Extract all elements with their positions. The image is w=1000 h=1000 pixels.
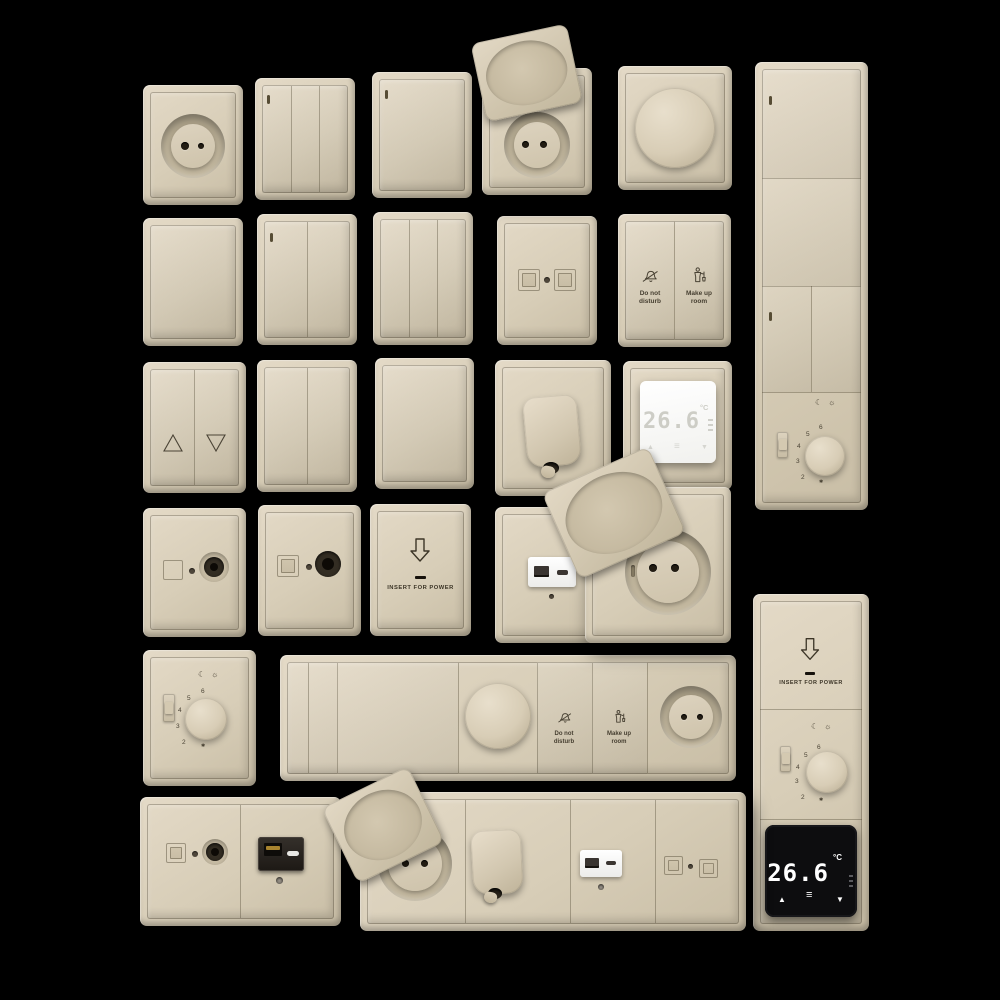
data-jack	[518, 269, 540, 291]
module-divider	[760, 709, 862, 710]
screw	[276, 877, 283, 884]
jack-recess	[163, 560, 183, 580]
sensor-vent	[708, 424, 713, 426]
temperature-unit: °C	[833, 853, 842, 862]
menu-key[interactable]: ≡	[806, 889, 812, 901]
status-indicator	[270, 233, 273, 242]
day-mode-icon: ☼	[211, 670, 218, 679]
lever-handle	[779, 439, 787, 450]
plate-tv-usb-combo	[140, 797, 341, 926]
plate-multi-outlet-strip	[360, 792, 746, 931]
switch-rocker[interactable]	[437, 219, 466, 338]
frost-protect-icon: ✱	[201, 743, 205, 749]
usb-a-port	[585, 858, 599, 868]
plate-socket-flip-lid	[482, 68, 592, 195]
plate-switch-1gang	[375, 358, 474, 489]
switch-rocker[interactable]	[382, 365, 467, 482]
night-mode-icon: ☾	[815, 398, 822, 407]
switch-rocker[interactable]	[319, 85, 348, 193]
screw-dot	[549, 594, 554, 599]
dial-number: 2	[801, 794, 805, 801]
dial-number: 5	[187, 695, 191, 702]
plate-column-bottom: INSERT FOR POWER ☾ ☼ 6 5 4 3 2 ✱ 26.6 °C…	[753, 594, 869, 931]
sensor-vent	[708, 419, 713, 421]
thermostat-dial-knob[interactable]	[806, 751, 848, 793]
day-mode-icon: ☼	[828, 398, 835, 407]
make-up-room-label: Make up room	[677, 290, 721, 307]
data-jack-opening	[558, 273, 572, 287]
night-mode-icon: ☾	[198, 670, 205, 679]
socket-pin-hole	[540, 141, 547, 148]
plate-round-socket	[143, 85, 243, 205]
coax-pin-hole	[210, 563, 218, 571]
data-jack	[699, 859, 718, 878]
frost-protect-icon: ✱	[819, 797, 823, 803]
switch-rocker[interactable]	[409, 219, 437, 338]
data-jack	[277, 555, 299, 577]
label-line: disturb	[542, 739, 586, 747]
label-line: Do not	[628, 290, 672, 298]
socket-pin-hole	[649, 564, 657, 572]
switch-rocker[interactable]	[308, 662, 337, 774]
bell-crossed-icon	[556, 709, 573, 726]
rocker-divider	[437, 220, 438, 337]
dimmer-knob[interactable]	[635, 88, 715, 168]
rocker-divider	[194, 370, 195, 485]
usb-module-black	[258, 837, 304, 871]
frost-protect-icon: ✱	[819, 479, 823, 485]
do-not-disturb-label: Do not disturb	[542, 731, 586, 747]
plate-hotel-switch: Do not disturb Make up room	[618, 214, 731, 347]
dial-number: 2	[801, 474, 805, 481]
switch-rocker[interactable]	[150, 225, 236, 339]
switch-rocker[interactable]	[291, 85, 319, 193]
make-up-room-label: Make up room	[597, 731, 641, 747]
plate-switch-1gang	[372, 72, 472, 198]
card-slot[interactable]	[415, 576, 426, 579]
usb-module	[580, 850, 622, 877]
shutter-up-icon	[160, 432, 186, 454]
earth-contact-slot	[631, 565, 635, 577]
label-line: room	[597, 739, 641, 747]
rocker-divider	[674, 222, 675, 339]
label-line: room	[677, 298, 721, 306]
plate-socket-flip-lid	[585, 487, 731, 643]
status-dot	[192, 851, 198, 857]
card-slot[interactable]	[805, 672, 815, 675]
rocker-divider	[291, 86, 292, 192]
coax-pin-hole	[322, 558, 334, 570]
usb-module	[528, 557, 576, 587]
switch-rocker[interactable]	[337, 662, 458, 774]
data-jack-opening	[170, 847, 182, 859]
socket-pin-hole	[181, 142, 189, 150]
canvas: { "scene": { "background": "#000000", "p…	[0, 0, 1000, 1000]
insert-for-power-label: INSERT FOR POWER	[380, 585, 461, 591]
status-dot	[189, 568, 195, 574]
plate-shutter-switch	[143, 362, 246, 493]
do-not-disturb-label: Do not disturb	[628, 290, 672, 307]
rocker-divider	[811, 286, 812, 392]
status-dot	[306, 564, 312, 570]
temperature-unit: °C	[700, 403, 708, 412]
shutter-down-button[interactable]	[194, 369, 239, 486]
module-divider	[655, 800, 656, 923]
temp-down-key[interactable]: ▼	[836, 895, 844, 904]
label-line: disturb	[628, 298, 672, 306]
usb-c-port	[606, 861, 616, 865]
dial-number: 3	[796, 458, 800, 465]
mode-lever[interactable]	[777, 432, 788, 458]
switch-rocker[interactable]	[264, 367, 307, 485]
switch-rocker[interactable]	[812, 286, 861, 392]
usb-a-tongue	[266, 846, 280, 850]
rocker-divider	[307, 368, 308, 484]
maid-icon	[689, 265, 709, 285]
status-indicator	[385, 90, 388, 99]
module-divider	[465, 800, 466, 923]
dial-number: 5	[804, 752, 808, 759]
plate-column-top: ☾ ☼ 6 5 4 3 2 ✱	[755, 62, 868, 510]
status-dot	[688, 864, 693, 869]
temperature-readout: 26.6	[642, 409, 700, 434]
data-jack-opening	[668, 860, 679, 871]
rocker-divider	[307, 222, 308, 337]
socket-pin-hole	[697, 714, 703, 720]
plate-switch-2gang	[257, 360, 357, 492]
data-jack	[554, 269, 576, 291]
socket-face	[669, 695, 713, 739]
usb-a-port	[534, 566, 549, 577]
dial-number: 3	[795, 778, 799, 785]
module-divider	[240, 805, 241, 918]
bell-crossed-icon	[640, 266, 660, 286]
sensor-vent	[849, 880, 853, 882]
usb-c-port	[287, 851, 299, 856]
socket-pin-hole	[671, 564, 679, 572]
sensor-vent	[708, 429, 713, 431]
usb-c-port	[557, 570, 568, 575]
data-jack-opening	[703, 863, 714, 874]
plate-data-socket	[497, 216, 597, 345]
dial-number: 4	[796, 764, 800, 771]
menu-key[interactable]: ≡	[674, 441, 680, 452]
data-jack	[166, 843, 186, 863]
lever-handle	[782, 753, 790, 764]
plate-dimmer	[618, 66, 732, 190]
plate-switch-2gang	[257, 214, 357, 345]
data-jack-opening	[281, 559, 295, 573]
socket-face	[637, 541, 699, 603]
night-mode-icon: ☾	[811, 722, 818, 731]
module-divider	[570, 800, 571, 923]
plate-switch-3gang	[373, 212, 473, 345]
shutter-down-icon	[203, 432, 229, 454]
dial-number: 6	[819, 424, 823, 431]
switch-rocker[interactable]	[307, 367, 350, 485]
sensor-vent	[849, 875, 853, 877]
insert-card-arrow-icon	[404, 534, 436, 566]
module-divider	[762, 392, 861, 393]
status-indicator	[769, 312, 772, 321]
rocker-divider	[409, 220, 410, 337]
socket-pin-hole	[522, 141, 529, 148]
dial-number: 5	[806, 431, 810, 438]
thermostat-dial-knob[interactable]	[185, 698, 227, 740]
switch-rocker[interactable]	[762, 286, 811, 392]
module-divider	[760, 819, 862, 820]
data-jack-opening	[522, 273, 536, 287]
mode-lever[interactable]	[163, 694, 175, 722]
sensor-vent	[849, 885, 853, 887]
dial-number: 2	[182, 739, 186, 746]
insert-card-arrow-icon	[795, 634, 825, 664]
status-indicator	[267, 95, 270, 104]
module-divider	[458, 663, 459, 773]
coax-pin-hole	[211, 848, 219, 856]
socket-face	[514, 122, 560, 168]
plate-keycard-holder: INSERT FOR POWER	[370, 504, 471, 636]
cord-outlet-hood	[470, 829, 523, 896]
status-dot	[544, 277, 550, 283]
dimmer-knob[interactable]	[465, 683, 531, 749]
plate-face	[377, 511, 464, 629]
shutter-up-button[interactable]	[150, 369, 194, 486]
dial-number: 4	[797, 443, 801, 450]
thermostat-display: 26.6 °C ▲ ≡ ▼	[765, 825, 857, 917]
lever-handle	[165, 702, 173, 714]
switch-rocker[interactable]	[307, 221, 350, 338]
plate-switch-1gang	[143, 218, 243, 346]
switch-rocker[interactable]	[762, 178, 861, 286]
thermostat-display: 26.6 °C ▲ ≡ ▼	[640, 381, 716, 463]
cord-outlet-hood	[522, 394, 582, 468]
rocker-divider	[319, 86, 320, 192]
module-divider	[647, 663, 648, 773]
switch-rocker[interactable]	[287, 662, 308, 774]
dial-number: 6	[817, 744, 821, 751]
data-jack	[664, 856, 683, 875]
plate-switch-3gang	[255, 78, 355, 200]
label-line: Make up	[677, 290, 721, 298]
temp-down-key[interactable]: ▼	[701, 444, 708, 451]
maid-icon	[611, 708, 628, 725]
socket-pin-hole	[421, 860, 428, 867]
mode-lever[interactable]	[780, 746, 791, 772]
status-indicator	[769, 96, 772, 105]
temperature-readout: 26.6	[767, 859, 829, 887]
plate-multi-panel: Do not disturb Make up room	[280, 655, 736, 781]
rocker-divider	[308, 663, 309, 773]
plate-tv-data-socket	[258, 505, 361, 636]
day-mode-icon: ☼	[824, 722, 831, 731]
dial-number: 4	[178, 707, 182, 714]
usb-a-port	[264, 843, 282, 856]
label-line: Make up	[597, 731, 641, 739]
socket-pin-hole	[681, 714, 687, 720]
socket-pin-hole	[198, 143, 204, 149]
switch-rocker[interactable]	[380, 219, 409, 338]
insert-for-power-label: INSERT FOR POWER	[761, 680, 861, 686]
socket-face	[171, 124, 215, 168]
socket-lid-inner	[480, 33, 574, 113]
dial-number: 3	[176, 723, 180, 730]
switch-rocker[interactable]	[379, 79, 465, 191]
temp-up-key[interactable]: ▲	[778, 895, 786, 904]
thermostat-dial-knob[interactable]	[805, 436, 845, 476]
screw	[598, 884, 604, 890]
plate-thermostat-rotary: ☾ ☼ 6 5 4 3 2 ✱	[143, 650, 256, 786]
switch-rocker[interactable]	[762, 69, 861, 178]
label-line: Do not	[542, 731, 586, 739]
plate-tv-socket	[143, 508, 246, 637]
dial-number: 6	[201, 688, 205, 695]
